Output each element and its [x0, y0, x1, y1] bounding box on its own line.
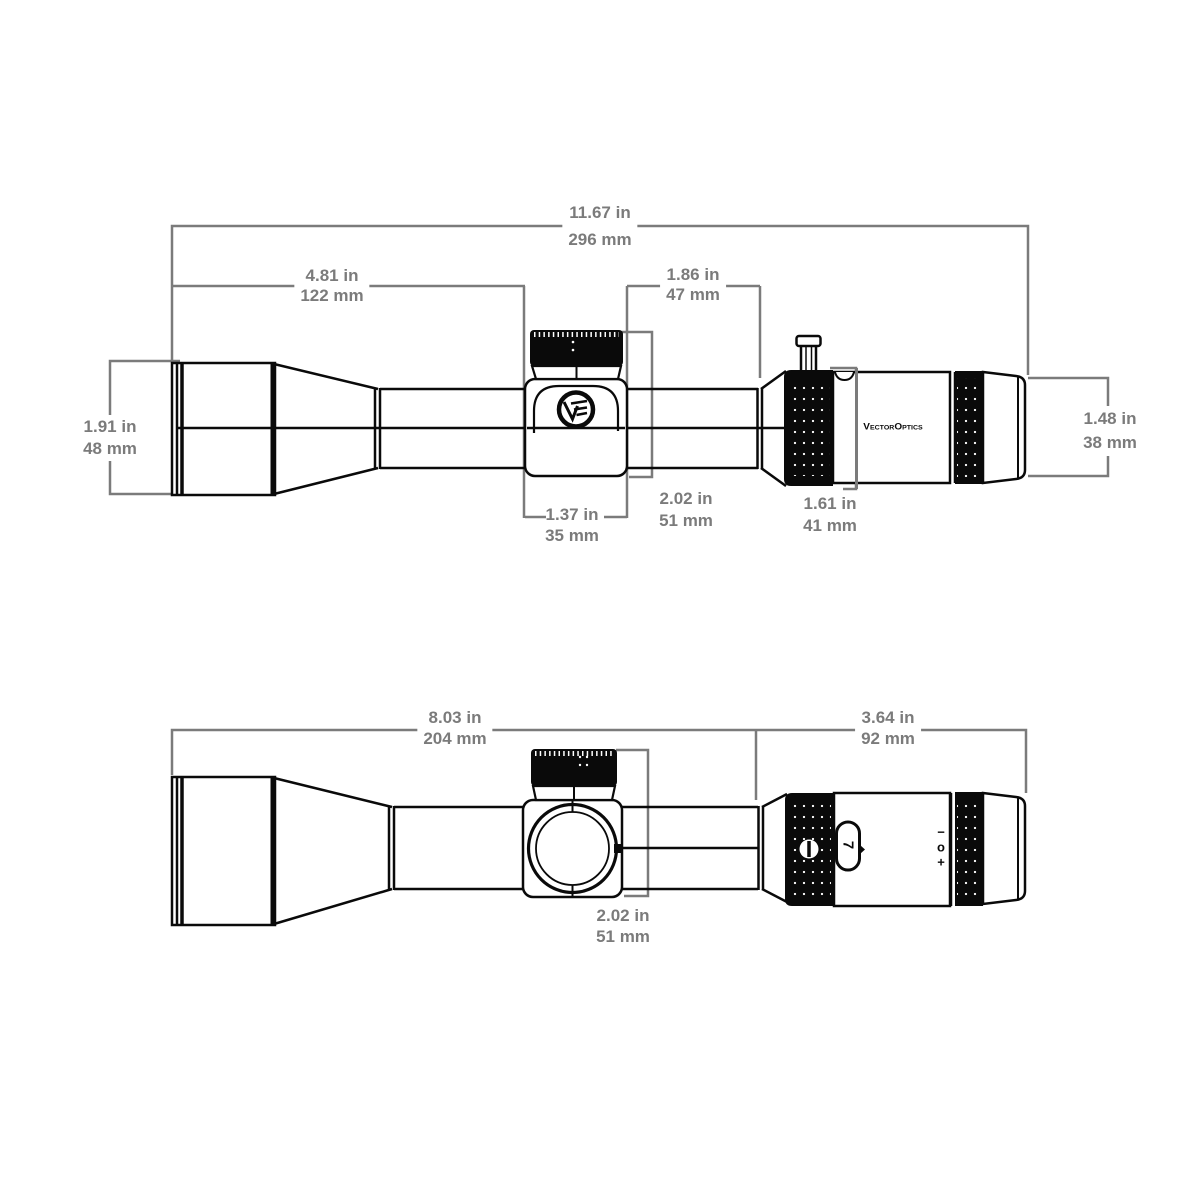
eyepiece-body-plan [834, 793, 951, 906]
diopter-ring-plan [955, 792, 983, 906]
diopter-ring [955, 371, 983, 484]
vector-optics-roundel-icon [559, 393, 593, 427]
top-plan-view-drawing [172, 749, 1025, 925]
eyepiece-cone-plan [759, 794, 788, 902]
windage-turret-cap [531, 749, 617, 800]
turret-saddle-plan [523, 800, 623, 897]
scope-dimension-diagram: 11.67 in296 mm 4.81 in122 mm 1.86 in47 m… [0, 0, 1200, 1200]
dim-ocular-section: 3.64 in92 mm [855, 706, 921, 750]
brand-logotype: VectorOptics [861, 422, 924, 432]
turret-index-nub [614, 844, 623, 853]
elevation-turret-cap [530, 330, 623, 379]
eyecup-plan [983, 793, 1025, 904]
dim-power-ring-od: 1.61 in41 mm [803, 493, 857, 537]
zoom-indicator-number: 7 [840, 841, 857, 849]
turret-saddle [525, 379, 627, 476]
magnification-ring [784, 370, 833, 486]
side-view-drawing [172, 330, 1025, 495]
dim-front-section: 8.03 in204 mm [417, 706, 492, 750]
eyecup [983, 372, 1025, 483]
dim-objective-diameter: 1.91 in48 mm [77, 415, 143, 461]
objective-bell-plan [172, 777, 392, 925]
dim-objective-section: 4.81 in122 mm [294, 265, 369, 307]
magnification-ring-plan [785, 793, 834, 906]
throw-lever [797, 336, 821, 372]
dim-turret-width: 2.02 in51 mm [596, 905, 650, 947]
diagram-line-art [0, 0, 1200, 1200]
dim-saddle-to-ring: 1.86 in47 mm [660, 264, 726, 306]
diopter-scale: − o + [937, 825, 945, 870]
dim-turret-height: 2.02 in51 mm [659, 488, 713, 532]
dim-leg-overlay [855, 368, 858, 489]
index-notch [835, 372, 854, 380]
dim-eyepiece-diameter: 1.48 in38 mm [1077, 406, 1143, 456]
dim-saddle-length: 1.37 in35 mm [545, 504, 599, 546]
dim-overall-length: 11.67 in296 mm [562, 198, 637, 254]
